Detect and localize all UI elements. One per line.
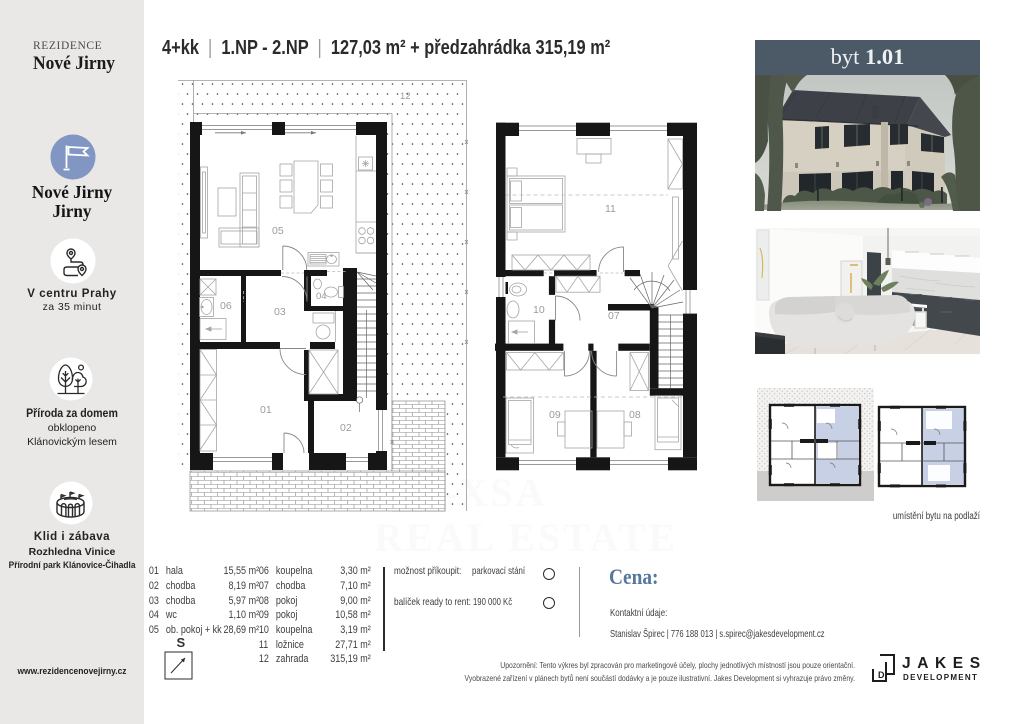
svg-text:DEVELOPMENT: DEVELOPMENT: [903, 673, 978, 682]
svg-text:S: S: [177, 635, 186, 650]
svg-text:D: D: [878, 670, 885, 680]
svg-text:05: 05: [272, 225, 284, 237]
svg-text:11: 11: [605, 203, 616, 215]
svg-text:01: 01: [260, 404, 272, 416]
svg-text:04: 04: [316, 291, 327, 302]
svg-text:08: 08: [629, 409, 641, 421]
svg-text:03: 03: [274, 306, 286, 318]
svg-text:07: 07: [608, 310, 620, 322]
svg-text:09: 09: [549, 409, 561, 421]
svg-text:12: 12: [400, 91, 411, 102]
svg-text:JAKES: JAKES: [902, 655, 987, 672]
svg-text:06: 06: [220, 300, 232, 312]
svg-text:02: 02: [340, 422, 352, 434]
svg-text:10: 10: [533, 304, 545, 316]
